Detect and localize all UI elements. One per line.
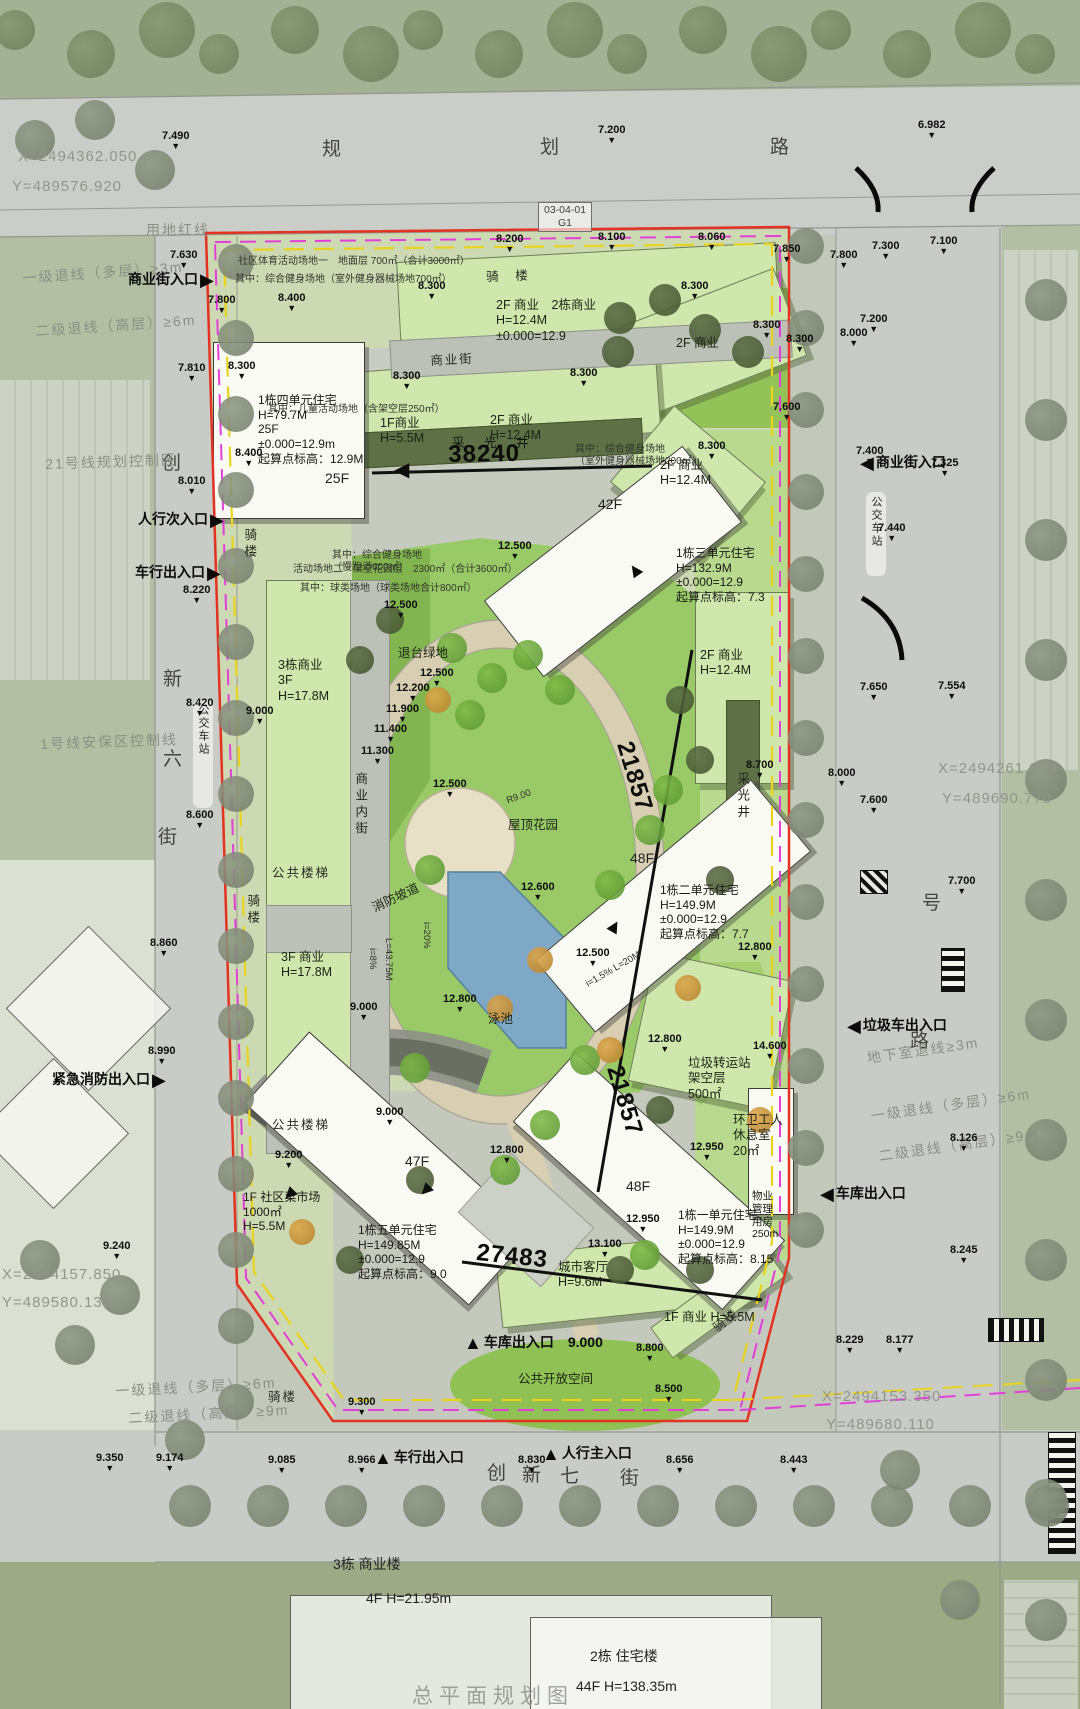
tree-icon [955,2,1011,58]
tree-icon [595,870,625,900]
entrance-veh-s: ▲车行出入口 [372,1448,464,1470]
entrance-shop-w: 商业街入口▶ [128,270,216,292]
elevation-triangle-icon: ▼ [156,1465,184,1471]
elevation-triangle-icon: ▼ [938,693,966,699]
tree-icon [666,686,694,714]
elevation-value: 14.600 [753,1040,787,1052]
road-name-bottom-1: 创 [487,1462,508,1485]
bus-platform-hatch [860,870,888,894]
site-plan-canvas: 公交车站公交车站 规划路创新六街号路创新七街X=2494362.050Y=489… [0,0,1080,1709]
tree-icon [271,6,319,54]
building-label-sanit: 环卫工人 休息室 20㎡ [733,1113,783,1159]
coordinate-bl-y: Y=489580.130 [2,1294,112,1312]
tree-icon [218,1080,254,1116]
elevation-triangle-icon: ▼ [186,822,214,828]
tree-icon [400,1053,430,1083]
tree-icon [169,1485,211,1527]
spot-elevation: 7.554▼ [938,680,966,700]
coordinate-tl-x: X=2494362.050 [18,148,137,166]
elevation-triangle-icon: ▼ [350,1014,378,1020]
spot-elevation: 12.950▼ [626,1213,660,1233]
spot-elevation: 6.982▼ [918,119,946,139]
entrance-text: 人行主入口 [562,1445,632,1461]
road-name-bottom-3: 七 [560,1465,581,1488]
elevation-triangle-icon: ▼ [773,414,801,420]
elevation-triangle-icon: ▼ [626,1226,660,1232]
spot-elevation: 8.300▼ [570,367,598,387]
elevation-value: 8.300 [681,280,709,292]
tree-icon [788,1048,824,1084]
ramp-dim-3: i=20% [420,922,432,949]
tree-icon [635,815,665,845]
elevation-triangle-icon: ▼ [518,1467,546,1473]
entrance-arrow-icon: ◀ [818,1184,836,1204]
tree-icon [788,720,824,756]
tree-icon [675,975,701,1001]
elevation-value: 12.200 [396,682,430,694]
spot-elevation: 8.420▼ [186,697,214,717]
spot-elevation: 9.174▼ [156,1452,184,1472]
elevation-value: 12.500 [420,667,454,679]
building-label-c1f: 1F商业 H=5.5M [380,416,424,447]
spot-elevation: 7.325▼ [931,457,959,477]
elevation-value: 12.800 [648,1033,682,1045]
spot-elevation: 8.300▼ [418,280,446,300]
elevation-value: 8.100 [598,231,626,243]
elevation-triangle-icon: ▼ [636,1355,664,1361]
tree-icon [325,1485,367,1527]
elevation-value: 6.982 [918,119,946,131]
elevation-value: 7.850 [773,243,801,255]
building-label-property: 物业 管理 用房 250m [752,1190,778,1241]
elevation-value: 11.400 [374,723,407,735]
elevation-value: 8.300 [753,319,781,331]
tree-icon [649,284,681,316]
program-note-1: 社区体育活动场地一 地面层 700㎡（合计3000㎡） [238,256,470,268]
elevation-value: 7.490 [162,130,190,142]
tree-icon [475,30,523,78]
elevation-triangle-icon: ▼ [598,244,626,250]
elevation-value: 9.085 [268,1454,296,1466]
elevation-triangle-icon: ▼ [570,380,598,386]
entrance-refuse-e: ◀垃圾车出入口 [845,1016,947,1038]
tree-icon [55,1325,95,1365]
coordinate-mr-y: Y=489690.770 [942,790,1052,808]
elevation-triangle-icon: ▼ [690,1154,724,1160]
block-code: 03-04-01 G1 [538,202,592,232]
ramp-dim-1: L=43.75M [382,938,394,981]
elevation-value: 8.656 [666,1454,694,1466]
elevation-triangle-icon: ▼ [275,1162,303,1168]
elevation-triangle-icon: ▼ [598,137,626,143]
elevation-triangle-icon: ▼ [886,1347,914,1353]
tree-icon [218,1004,254,1040]
elevation-triangle-icon: ▼ [773,256,801,262]
spot-elevation: 7.300▼ [872,240,900,260]
tree-icon [602,336,634,368]
elevation-value: 8.860 [150,937,178,949]
tree-icon [788,1212,824,1248]
stair-label-1: 公共楼梯 [272,866,330,881]
commercial-3-north [266,580,352,907]
spot-elevation: 8.500▼ [655,1383,683,1403]
elevation-triangle-icon: ▼ [836,1347,864,1353]
elevation-triangle-icon: ▼ [246,718,274,724]
building-label-t42: 1栋三单元住宅 H=132.9M ±0.000=12.9 起算点标高：7.3 [676,546,765,605]
spot-elevation: 9.300▼ [348,1396,376,1416]
spot-elevation: 9.200▼ [275,1149,303,1169]
spot-elevation: 7.400▼ [856,445,884,465]
coordinate-bl-x: X=2494157.850 [2,1266,121,1284]
redline-label: 用地红线 [146,222,210,239]
elevation-value: 8.060 [698,231,726,243]
entrance-text: 垃圾车出入口 [863,1017,947,1033]
elevation-triangle-icon: ▼ [576,960,610,966]
elevation-triangle-icon: ▼ [393,383,421,389]
tree-icon [218,928,254,964]
entrance-ped-w: 人行次入口▶ [138,510,226,532]
crosswalk-right-low [988,1318,1044,1342]
spot-elevation: 8.990▼ [148,1045,176,1065]
entrance-arrow-icon: ▶ [198,270,216,290]
tree-icon [1027,1485,1069,1527]
tree-icon [545,675,575,705]
tree-icon [751,26,807,82]
elevation-value: 12.500 [576,947,610,959]
elevation-triangle-icon: ▼ [186,710,214,716]
tree-icon [218,396,254,432]
tree-icon [199,34,239,74]
elevation-triangle-icon: ▼ [840,340,868,346]
spot-elevation: 8.229▼ [836,1334,864,1354]
elevation-value: 12.500 [498,540,532,552]
spot-elevation: 8.300▼ [228,360,256,380]
elevation-triangle-icon: ▼ [830,262,858,268]
elevation-triangle-icon: ▼ [738,954,772,960]
building-floors-t48l: 48F [626,1178,650,1195]
ramp-dim-2: i=8% [366,948,378,969]
tree-icon [788,802,824,838]
inner-street-label: 商业内街 [352,772,367,838]
elevation-value: 9.174 [156,1452,184,1464]
elevation-triangle-icon: ▼ [148,1058,176,1064]
spot-elevation: 7.440▼ [878,522,906,542]
elevation-value: 7.325 [931,457,959,469]
tree-icon [415,855,445,885]
coordinate-tl-y: Y=489576.920 [12,178,122,196]
spot-elevation: 12.500▼ [384,599,418,619]
entrance-text: 车库出入口 [836,1185,906,1201]
spot-elevation: 8.300▼ [753,319,781,339]
elevation-value: 8.443 [780,1454,808,1466]
spot-elevation: 8.400▼ [235,447,263,467]
spot-elevation: 8.300▼ [681,280,709,300]
entrance-arrow-icon: ◀ [845,1016,863,1036]
elevation-value: 8.400 [235,447,263,459]
elevation-value: 8.300 [393,370,421,382]
spot-elevation: 12.800▼ [648,1033,682,1053]
tree-icon [811,10,851,50]
tree-icon [346,646,374,674]
tree-icon [218,1156,254,1192]
building-label-c2: 2F 商业 2栋商业 H=12.4M ±0.000=12.9 [496,298,596,344]
entrance-arrow-icon: ▶ [205,563,223,583]
spot-elevation: 8.966▼ [348,1454,376,1474]
elevation-value: 7.630 [170,249,198,261]
spot-elevation: 8.200▼ [496,233,524,253]
elevation-triangle-icon: ▼ [918,132,946,138]
building-label-parcel3: 3栋 商业楼 [333,1556,401,1573]
building-label-t25: 1栋四单元住宅 H=79.7M 25F ±0.000=12.9m 起算点标高：1… [258,393,363,466]
tree-icon [788,966,824,1002]
elevation-triangle-icon: ▼ [235,460,263,466]
arcade-label-l2: 骑楼 [244,894,259,927]
elevation-triangle-icon: ▼ [860,694,888,700]
entrance-text: 紧急消防出入口 [52,1071,150,1087]
elevation-triangle-icon: ▼ [948,888,976,894]
tree-icon [871,1485,913,1527]
elevation-triangle-icon: ▼ [872,253,900,259]
elevation-value: 8.700 [746,759,774,771]
elevation-triangle-icon: ▼ [396,695,430,701]
spot-elevation: 8.245▼ [950,1244,978,1264]
spot-elevation: 9.000▼ [350,1001,378,1021]
dimension-1: 38240 [448,439,520,470]
elevation-triangle-icon: ▼ [278,305,306,311]
elevation-triangle-icon: ▼ [698,244,726,250]
entrance-text: 商业街入口 [128,271,198,287]
coordinate-mr-x: X=2494261.800 [938,760,1057,778]
elevation-value: 7.100 [930,235,958,247]
arcade-label-top: 骑 楼 [486,268,530,285]
elevation-triangle-icon: ▼ [96,1465,124,1471]
elevation-triangle-icon: ▼ [384,612,418,618]
tree-icon [597,1037,623,1063]
road-name-left-3: 六 [163,748,184,771]
building-floors-t42: 42F [598,496,622,513]
elevation-triangle-icon: ▼ [418,293,446,299]
elevation-value: 12.950 [690,1141,724,1153]
spot-elevation: 8.443▼ [780,1454,808,1474]
building-label-parcel2: 2栋 住宅楼 [590,1648,658,1665]
elevation-triangle-icon: ▼ [780,1467,808,1473]
elevation-value: 12.800 [738,941,772,953]
tree-icon [1025,519,1067,561]
tree-icon [513,640,543,670]
elevation-triangle-icon: ▼ [860,807,888,813]
tree-icon [732,336,764,368]
spot-elevation: 11.300▼ [361,745,394,765]
tree-icon [218,472,254,508]
elevation-triangle-icon: ▼ [878,535,906,541]
spot-elevation: 9.240▼ [103,1240,131,1260]
elevation-value: 8.220 [183,584,211,596]
tree-icon [793,1485,835,1527]
spot-elevation: 7.800▼ [830,249,858,269]
elevation-value: 9.000 [246,705,274,717]
spot-elevation: 12.500▼ [498,540,532,560]
building-floors-t47: 47F [405,1153,429,1170]
spot-elevation: 7.850▼ [773,243,801,263]
road-name-top-3: 路 [770,136,791,159]
elevation-value: 9.200 [275,1149,303,1161]
spot-elevation: 8.300▼ [393,370,421,390]
elevation-triangle-icon: ▼ [931,470,959,476]
tree-icon [218,852,254,888]
spot-elevation: 14.600▼ [753,1040,787,1060]
lightwell-label-2: 采光井 [734,772,749,822]
elevation-triangle-icon: ▼ [950,1257,978,1263]
entrance-text: 人行次入口 [138,511,208,527]
elevation-triangle-icon: ▼ [376,1119,404,1125]
elevation-value: 8.300 [786,333,814,345]
building-label-c3b: 3F 商业 H=17.8M [281,950,332,981]
spot-elevation: 8.700▼ [746,759,774,779]
tree-icon [788,556,824,592]
elevation-triangle-icon: ▼ [655,1396,683,1402]
elevation-triangle-icon: ▼ [930,248,958,254]
tree-icon [1015,34,1055,74]
program-note-7: 其中：球类场地（球类场地合计800㎡） [300,583,477,595]
elevation-triangle-icon: ▼ [208,307,236,313]
road-name-left-2: 新 [163,668,184,691]
building-label-c2b: 2F 商业 [676,336,719,351]
tree-icon [1025,999,1067,1041]
spot-elevation: 8.300▼ [786,333,814,353]
elevation-value: 7.600 [860,794,888,806]
tree-icon [1025,639,1067,681]
spot-elevation: 12.200▼ [396,682,430,702]
tree-icon [547,2,603,58]
elevation-value: 7.300 [872,240,900,252]
tree-icon [788,638,824,674]
tree-icon [481,1485,523,1527]
spot-elevation: 8.060▼ [698,231,726,251]
elevation-value: 8.177 [886,1334,914,1346]
elevation-value: 8.600 [186,809,214,821]
elevation-value: 7.554 [938,680,966,692]
shop-street-label: 商业街 [430,352,474,370]
crosswalk-right [941,948,965,992]
elevation-triangle-icon: ▼ [496,246,524,252]
tree-icon [403,10,443,50]
spot-elevation: 7.810▼ [178,362,206,382]
flow-arrow: ◀ [394,458,409,482]
elevation-triangle-icon: ▼ [828,780,856,786]
spot-elevation: 12.800▼ [443,993,477,1013]
spot-elevation: 9.000▼ [246,705,274,725]
elevation-triangle-icon: ▼ [753,332,781,338]
elevation-value: 8.800 [636,1342,664,1354]
elevation-triangle-icon: ▼ [498,553,532,559]
entrance-arrow-icon: ▶ [208,510,226,530]
building-label-t47: 1栋五单元住宅 H=149.85M ±0.000=12.9 起算点标高：9.0 [358,1223,447,1282]
spot-elevation: 8.300▼ [698,440,726,460]
program-note-6: 活动场地二 架空花园层 2300㎡（合计3600㎡） [293,564,518,576]
spot-elevation: 12.800▼ [738,941,772,961]
spot-elevation: 7.630▼ [170,249,198,269]
elevation-triangle-icon: ▼ [228,373,256,379]
elevation-triangle-icon: ▼ [162,143,190,149]
tree-icon [135,150,175,190]
tree-icon [1025,279,1067,321]
tree-icon [1025,1359,1067,1401]
spot-elevation: 7.490▼ [162,130,190,150]
building-label-c2d: 2F 商业 H=12.4M [660,458,711,489]
building-floors-t48m: 48F [630,850,654,867]
public-stair-1 [266,905,352,953]
elevation-value: 12.500 [384,599,418,611]
elevation-value: 9.350 [96,1452,124,1464]
building-label-c3: 3栋商业 3F H=17.8M [278,658,329,704]
elevation-value: 12.950 [626,1213,660,1225]
tree-icon [218,624,254,660]
spot-elevation: 11.900▼ [386,703,419,723]
elevation-triangle-icon: ▼ [698,453,726,459]
elevation-value: 8.245 [950,1244,978,1256]
elevation-value: 8.500 [655,1383,683,1395]
entrance-garage-s: ▲车库出入口 9.000 [462,1333,603,1355]
building-label-t48m: 1栋二单元住宅 H=149.9M ±0.000=12.9 起算点标高：7.7 [660,883,749,942]
elevation-triangle-icon: ▼ [103,1253,131,1259]
parking-right [1004,250,1078,770]
spot-elevation: 8.400▼ [278,292,306,312]
open-space-label: 公共开放空间 [518,1372,593,1387]
elevation-value: 8.000 [840,327,868,339]
tree-icon [606,1256,634,1284]
tree-icon [1025,399,1067,441]
tree-icon [630,1240,660,1270]
entrance-garage-e: ◀车库出入口 [818,1184,906,1206]
spot-elevation: 7.650▼ [860,681,888,701]
entrance-text: 车行出入口 [135,564,205,580]
elevation-value: 7.800 [830,249,858,261]
tree-icon [646,1096,674,1124]
spot-elevation: 8.600▼ [186,809,214,829]
spot-elevation: 8.000▼ [840,327,868,347]
elevation-triangle-icon: ▼ [753,1053,787,1059]
spot-elevation: 8.100▼ [598,231,626,251]
entrance-arrow-icon: ▶ [150,1070,168,1090]
tree-icon [788,474,824,510]
tree-icon [1025,1599,1067,1641]
roof-garden-label: 屋顶花园 [508,818,558,833]
elevation-value: 12.800 [443,993,477,1005]
spot-elevation: 9.350▼ [96,1452,124,1472]
elevation-triangle-icon: ▼ [178,488,206,494]
elevation-value: 8.000 [828,767,856,779]
building-label-parcel3b: 4F H=21.95m [366,1590,451,1607]
tree-icon [883,30,931,78]
tree-icon [218,1308,254,1344]
elevation-triangle-icon: ▼ [374,736,407,742]
tree-icon [218,1232,254,1268]
tree-icon [570,1045,600,1075]
elevation-triangle-icon: ▼ [856,458,884,464]
tree-icon [67,30,115,78]
coordinate-br-y: Y=489680.110 [826,1416,935,1434]
road-name-left-4: 街 [158,826,179,849]
spot-elevation: 7.700▼ [948,875,976,895]
tree-icon [403,1485,445,1527]
spot-elevation: 7.100▼ [930,235,958,255]
tree-icon [455,700,485,730]
tree-icon [880,1450,920,1490]
spot-elevation: 8.800▼ [636,1342,664,1362]
spot-elevation: 9.085▼ [268,1454,296,1474]
entrance-fire-w: 紧急消防出入口▶ [52,1070,168,1092]
elevation-value: 8.010 [178,475,206,487]
